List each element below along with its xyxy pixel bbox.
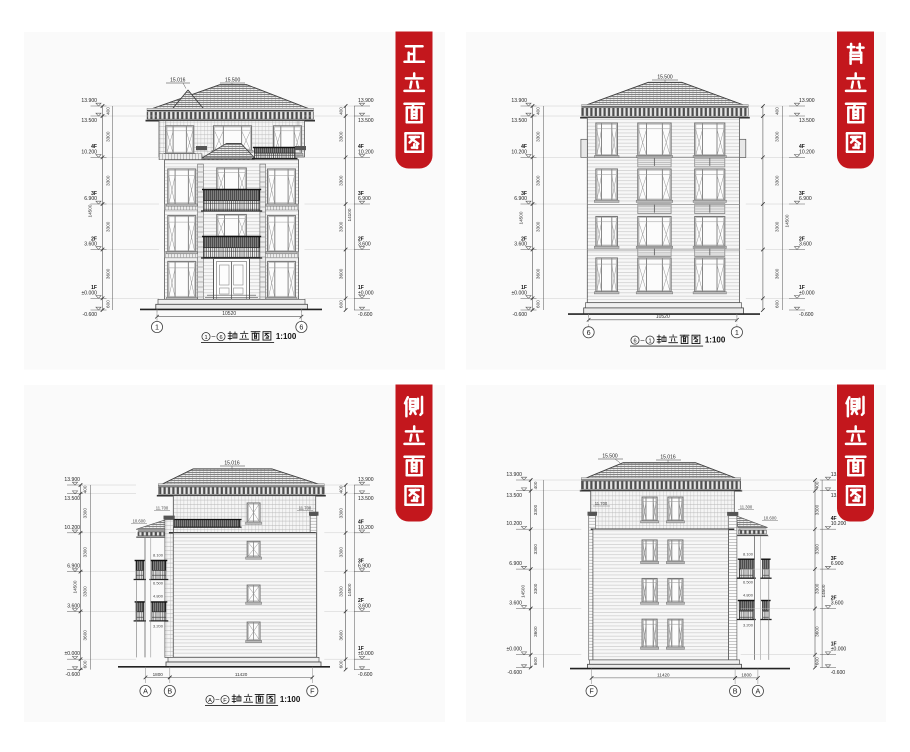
svg-text:B: B — [733, 687, 738, 696]
svg-text:A: A — [208, 698, 212, 704]
svg-text:3300: 3300 — [83, 508, 88, 519]
svg-text:400: 400 — [775, 107, 780, 115]
svg-text:6.900: 6.900 — [358, 564, 371, 570]
svg-text:15.500: 15.500 — [602, 454, 618, 460]
svg-text:A: A — [143, 687, 148, 696]
svg-text:3300: 3300 — [339, 547, 344, 558]
svg-text:14500: 14500 — [73, 580, 78, 593]
svg-text:600: 600 — [106, 300, 111, 308]
svg-text:4.800: 4.800 — [743, 593, 754, 598]
svg-text:600: 600 — [339, 300, 344, 308]
svg-text:3300: 3300 — [775, 221, 780, 232]
svg-text:14500: 14500 — [821, 584, 826, 597]
svg-text:±0.000: ±0.000 — [506, 647, 522, 653]
svg-text:1: 1 — [735, 328, 739, 337]
svg-text:3.600: 3.600 — [831, 601, 844, 607]
svg-text:±0.000: ±0.000 — [799, 290, 815, 296]
svg-text:1: 1 — [648, 338, 651, 344]
svg-text:8.100: 8.100 — [743, 552, 754, 557]
svg-text:6.900: 6.900 — [67, 564, 80, 570]
svg-text:13.500: 13.500 — [358, 118, 374, 124]
svg-text:3300: 3300 — [339, 175, 344, 186]
svg-text:14500: 14500 — [347, 583, 352, 596]
svg-text:6.900: 6.900 — [799, 196, 812, 202]
svg-text:11.700: 11.700 — [595, 501, 608, 506]
svg-text:3600: 3600 — [775, 268, 780, 279]
svg-text:10.200: 10.200 — [81, 149, 97, 155]
svg-text:3300: 3300 — [339, 508, 344, 519]
svg-text:14500: 14500 — [88, 204, 93, 217]
svg-text:3.600: 3.600 — [799, 242, 812, 248]
svg-text:14500: 14500 — [520, 584, 525, 597]
svg-text:3.200: 3.200 — [743, 623, 754, 628]
svg-text:3.600: 3.600 — [358, 603, 371, 609]
svg-text:A: A — [756, 687, 761, 696]
svg-text:-0.600: -0.600 — [83, 312, 98, 318]
svg-text:6.900: 6.900 — [514, 196, 527, 202]
svg-text:6.900: 6.900 — [358, 196, 371, 202]
svg-text:10520: 10520 — [222, 311, 236, 317]
svg-text:13.500: 13.500 — [64, 496, 80, 502]
svg-text:3300: 3300 — [815, 544, 820, 555]
svg-text:3.600: 3.600 — [509, 601, 522, 607]
svg-text:6: 6 — [633, 338, 636, 344]
svg-text:–: – — [212, 334, 216, 341]
svg-text:–: – — [641, 337, 645, 344]
svg-text:15.016: 15.016 — [660, 455, 676, 461]
svg-text:11420: 11420 — [235, 672, 248, 677]
svg-text:3600: 3600 — [339, 630, 344, 641]
svg-text:3600: 3600 — [536, 268, 541, 279]
svg-text:3300: 3300 — [533, 583, 538, 594]
svg-text:13.900: 13.900 — [799, 98, 815, 104]
svg-text:6: 6 — [587, 328, 591, 337]
svg-text:13.500: 13.500 — [358, 496, 374, 502]
svg-text:1: 1 — [155, 323, 159, 332]
svg-text:13.900: 13.900 — [358, 98, 374, 104]
svg-text:-0.600: -0.600 — [799, 312, 814, 318]
svg-text:1800: 1800 — [153, 672, 164, 677]
svg-text:3.600: 3.600 — [514, 242, 527, 248]
svg-text:13.900: 13.900 — [506, 472, 522, 478]
svg-text:±0.000: ±0.000 — [358, 651, 374, 657]
svg-text:3300: 3300 — [83, 547, 88, 558]
svg-text:1:100: 1:100 — [276, 332, 297, 341]
svg-text:3300: 3300 — [536, 221, 541, 232]
svg-text:3300: 3300 — [536, 131, 541, 142]
svg-text:3300: 3300 — [339, 131, 344, 142]
svg-text:±0.000: ±0.000 — [64, 651, 80, 657]
svg-text:10.200: 10.200 — [64, 525, 80, 531]
svg-text:15.500: 15.500 — [225, 78, 241, 84]
svg-text:-0.600: -0.600 — [508, 670, 523, 676]
svg-text:3.600: 3.600 — [84, 242, 97, 248]
svg-text:6.900: 6.900 — [831, 561, 844, 567]
svg-text:400: 400 — [339, 485, 344, 493]
svg-text:10.200: 10.200 — [358, 149, 374, 155]
svg-text:-0.600: -0.600 — [358, 672, 373, 678]
svg-text:3300: 3300 — [339, 221, 344, 232]
svg-text:14500: 14500 — [785, 214, 790, 227]
svg-text:600: 600 — [775, 300, 780, 308]
svg-text:3.600: 3.600 — [67, 603, 80, 609]
svg-text:15.016: 15.016 — [224, 461, 240, 467]
svg-text:±0.000: ±0.000 — [511, 290, 527, 296]
svg-text:10.600: 10.600 — [764, 516, 777, 521]
svg-text:600: 600 — [339, 660, 344, 668]
svg-text:11.700: 11.700 — [299, 506, 312, 511]
svg-text:15.500: 15.500 — [657, 75, 673, 81]
svg-text:400: 400 — [536, 107, 541, 115]
svg-text:13.900: 13.900 — [511, 98, 527, 104]
svg-text:±0.000: ±0.000 — [358, 290, 374, 296]
svg-text:-0.600: -0.600 — [513, 312, 528, 318]
svg-text:400: 400 — [815, 481, 820, 489]
svg-text:3300: 3300 — [106, 131, 111, 142]
svg-text:F: F — [223, 698, 227, 704]
svg-text:F: F — [589, 687, 594, 696]
svg-text:-0.600: -0.600 — [358, 312, 373, 318]
svg-text:10.200: 10.200 — [358, 525, 374, 531]
svg-text:F: F — [310, 687, 315, 696]
svg-text:3.200: 3.200 — [153, 624, 164, 629]
svg-text:3600: 3600 — [533, 626, 538, 637]
svg-text:600: 600 — [815, 657, 820, 665]
svg-text:400: 400 — [533, 481, 538, 489]
svg-text:3300: 3300 — [106, 175, 111, 186]
svg-text:1:100: 1:100 — [280, 695, 301, 704]
svg-text:13.900: 13.900 — [358, 477, 374, 483]
svg-text:10520: 10520 — [656, 314, 670, 320]
svg-text:3600: 3600 — [106, 268, 111, 279]
svg-text:6: 6 — [219, 335, 222, 341]
svg-text:13.900: 13.900 — [64, 477, 80, 483]
svg-text:-0.600: -0.600 — [66, 672, 81, 678]
svg-text:3300: 3300 — [536, 175, 541, 186]
svg-text:8.100: 8.100 — [153, 553, 164, 558]
svg-text:13.500: 13.500 — [81, 118, 97, 124]
svg-text:11.700: 11.700 — [156, 506, 169, 511]
svg-text:10.600: 10.600 — [133, 519, 146, 524]
svg-text:10.200: 10.200 — [506, 521, 522, 527]
svg-text:400: 400 — [83, 485, 88, 493]
svg-text:3300: 3300 — [106, 221, 111, 232]
svg-text:14500: 14500 — [519, 211, 524, 224]
svg-text:3600: 3600 — [815, 626, 820, 637]
svg-text:3300: 3300 — [815, 504, 820, 515]
svg-text:13.500: 13.500 — [799, 118, 815, 124]
svg-text:13.500: 13.500 — [506, 493, 522, 499]
svg-text:3300: 3300 — [533, 504, 538, 515]
svg-text:15.016: 15.016 — [170, 78, 186, 84]
svg-text:600: 600 — [533, 657, 538, 665]
svg-text:3.600: 3.600 — [358, 242, 371, 248]
svg-text:11.300: 11.300 — [740, 505, 753, 510]
svg-text:6.900: 6.900 — [509, 561, 522, 567]
svg-text:1: 1 — [204, 335, 207, 341]
svg-text:6.500: 6.500 — [153, 581, 164, 586]
svg-text:6.900: 6.900 — [84, 196, 97, 202]
svg-text:±0.000: ±0.000 — [831, 647, 847, 653]
svg-text:3300: 3300 — [775, 175, 780, 186]
svg-text:1:100: 1:100 — [705, 336, 726, 345]
svg-text:11420: 11420 — [657, 672, 670, 677]
svg-text:6.500: 6.500 — [743, 580, 754, 585]
svg-text:6: 6 — [299, 323, 303, 332]
svg-text:3300: 3300 — [815, 583, 820, 594]
svg-text:4.800: 4.800 — [153, 594, 164, 599]
svg-text:13.900: 13.900 — [81, 98, 97, 104]
svg-text:±0.000: ±0.000 — [81, 290, 97, 296]
svg-text:10.200: 10.200 — [511, 149, 527, 155]
svg-text:-0.600: -0.600 — [831, 670, 846, 676]
svg-text:3300: 3300 — [533, 544, 538, 555]
svg-text:1800: 1800 — [741, 672, 752, 677]
svg-text:B: B — [167, 687, 172, 696]
svg-text:–: – — [216, 697, 220, 704]
svg-text:3300: 3300 — [775, 131, 780, 142]
svg-text:10.200: 10.200 — [831, 521, 847, 527]
svg-text:400: 400 — [339, 107, 344, 115]
svg-text:3300: 3300 — [83, 586, 88, 597]
svg-text:3600: 3600 — [339, 268, 344, 279]
svg-text:600: 600 — [536, 300, 541, 308]
svg-text:3300: 3300 — [339, 586, 344, 597]
svg-text:10.200: 10.200 — [799, 149, 815, 155]
svg-text:400: 400 — [106, 107, 111, 115]
svg-text:3600: 3600 — [83, 630, 88, 641]
svg-text:13.500: 13.500 — [511, 118, 527, 124]
svg-text:14100: 14100 — [347, 208, 352, 221]
svg-text:600: 600 — [83, 660, 88, 668]
